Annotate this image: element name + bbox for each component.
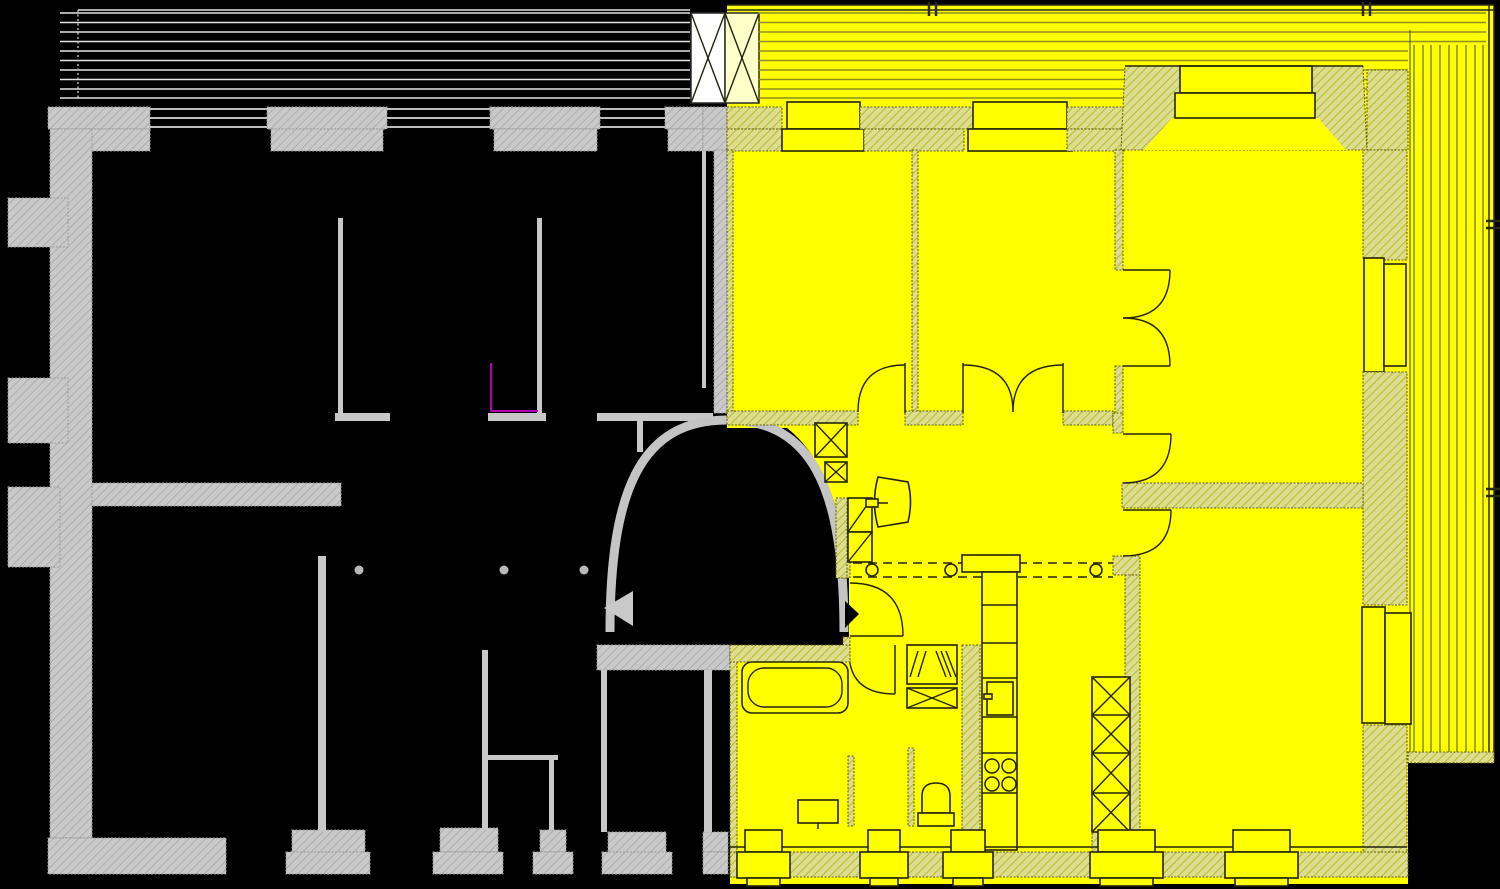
balcony-door <box>1362 607 1385 723</box>
toilet <box>918 783 954 826</box>
right-exterior-wall <box>1362 70 1411 877</box>
floor-plan-svg <box>0 0 1500 889</box>
washing-machine <box>907 645 957 684</box>
balcony-divider <box>691 13 759 103</box>
floor-plan-canvas <box>0 0 1500 889</box>
kitchen-counter-top <box>962 555 1020 572</box>
window-right-upper <box>1364 258 1384 372</box>
top-wall-right <box>703 102 1125 151</box>
bathtub <box>742 662 848 713</box>
wardrobe <box>1092 677 1130 832</box>
party-wall <box>714 150 733 413</box>
window-right-1 <box>787 102 860 129</box>
window-right-2 <box>973 102 1067 129</box>
bay-window <box>1121 66 1367 150</box>
crossed-cabinet <box>907 688 957 708</box>
